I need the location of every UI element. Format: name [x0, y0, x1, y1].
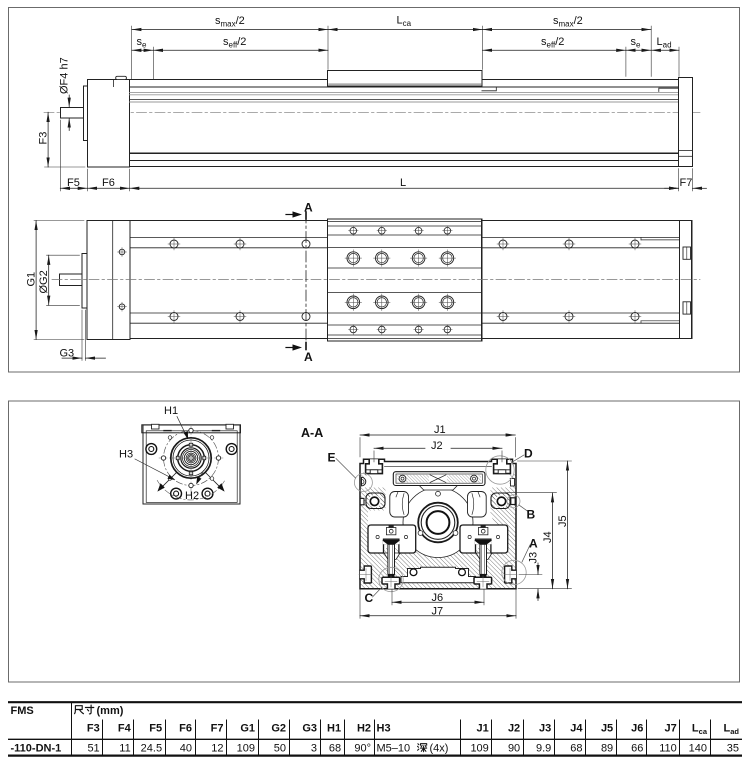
svg-text:140: 140 [689, 742, 707, 754]
svg-text:40: 40 [180, 742, 192, 754]
svg-text:F6: F6 [102, 177, 115, 189]
svg-text:F5: F5 [67, 177, 80, 189]
svg-text:J2: J2 [508, 723, 520, 735]
svg-text:B: B [527, 508, 536, 522]
svg-text:se: se [631, 36, 642, 50]
svg-text:F6: F6 [179, 723, 192, 735]
svg-text:24.5: 24.5 [141, 742, 162, 754]
svg-text:110: 110 [659, 742, 677, 754]
svg-text:L: L [400, 177, 406, 189]
svg-text:C: C [365, 591, 374, 605]
svg-text:J3: J3 [528, 552, 540, 564]
svg-text:-110-DN-1: -110-DN-1 [11, 742, 62, 754]
svg-text:G2: G2 [271, 723, 286, 735]
svg-text:68: 68 [329, 742, 341, 754]
svg-text:90°: 90° [354, 742, 371, 754]
svg-text:F3: F3 [87, 723, 100, 735]
svg-text:H1: H1 [164, 405, 178, 417]
svg-text:J1: J1 [434, 424, 446, 436]
svg-text:(4x): (4x) [430, 742, 449, 754]
svg-text:F3: F3 [38, 132, 50, 145]
svg-text:H2: H2 [357, 723, 371, 735]
svg-text:J7: J7 [665, 723, 677, 735]
svg-text:109: 109 [237, 742, 255, 754]
svg-text:89: 89 [601, 742, 613, 754]
svg-text:(mm): (mm) [97, 705, 124, 717]
svg-text:51: 51 [87, 742, 99, 754]
svg-text:ØG2: ØG2 [38, 270, 50, 293]
svg-text:J5: J5 [601, 723, 613, 735]
svg-text:A: A [304, 350, 313, 364]
svg-text:Lca: Lca [397, 15, 412, 29]
svg-text:G1: G1 [26, 272, 38, 287]
svg-text:smax/2: smax/2 [215, 15, 245, 29]
svg-text:66: 66 [631, 742, 643, 754]
svg-text:se: se [137, 36, 148, 50]
svg-text:FMS: FMS [11, 705, 34, 717]
svg-text:J6: J6 [432, 592, 444, 604]
svg-text:9.9: 9.9 [536, 742, 551, 754]
svg-text:11: 11 [119, 742, 130, 754]
svg-text:G3: G3 [60, 348, 75, 360]
svg-text:90: 90 [508, 742, 520, 754]
svg-text:A-A: A-A [301, 426, 323, 440]
svg-text:F5: F5 [149, 723, 162, 735]
svg-text:J2: J2 [431, 440, 443, 452]
svg-text:H2: H2 [185, 490, 199, 502]
svg-text:seff/2: seff/2 [223, 36, 246, 50]
svg-text:J4: J4 [542, 531, 554, 543]
svg-text:Lad: Lad [657, 36, 672, 50]
svg-text:68: 68 [570, 742, 582, 754]
svg-text:3: 3 [311, 742, 317, 754]
svg-text:J1: J1 [477, 723, 489, 735]
svg-text:ØF4 h7: ØF4 h7 [59, 57, 71, 94]
svg-text:H3: H3 [377, 723, 391, 735]
svg-text:seff/2: seff/2 [541, 36, 564, 50]
svg-text:A: A [304, 201, 313, 215]
svg-text:H3: H3 [119, 449, 133, 461]
svg-text:Lad: Lad [724, 723, 740, 737]
svg-text:G3: G3 [302, 723, 317, 735]
svg-text:12: 12 [211, 742, 223, 754]
svg-text:H1: H1 [327, 723, 341, 735]
svg-text:35: 35 [727, 742, 739, 754]
svg-text:J5: J5 [557, 515, 569, 527]
svg-text:F7: F7 [680, 177, 693, 189]
svg-text:J7: J7 [432, 606, 444, 618]
svg-text:E: E [328, 451, 336, 465]
svg-text:J6: J6 [631, 723, 643, 735]
svg-text:M5–10: M5–10 [377, 742, 411, 754]
svg-text:A: A [529, 537, 538, 551]
svg-text:J4: J4 [570, 723, 583, 735]
svg-text:D: D [524, 447, 533, 461]
svg-text:F7: F7 [211, 723, 224, 735]
svg-text:F4: F4 [118, 723, 132, 735]
svg-text:G1: G1 [240, 723, 255, 735]
svg-text:50: 50 [274, 742, 286, 754]
svg-text:smax/2: smax/2 [553, 15, 583, 29]
svg-text:Lca: Lca [692, 723, 708, 737]
svg-text:J3: J3 [539, 723, 551, 735]
svg-text:109: 109 [470, 742, 488, 754]
